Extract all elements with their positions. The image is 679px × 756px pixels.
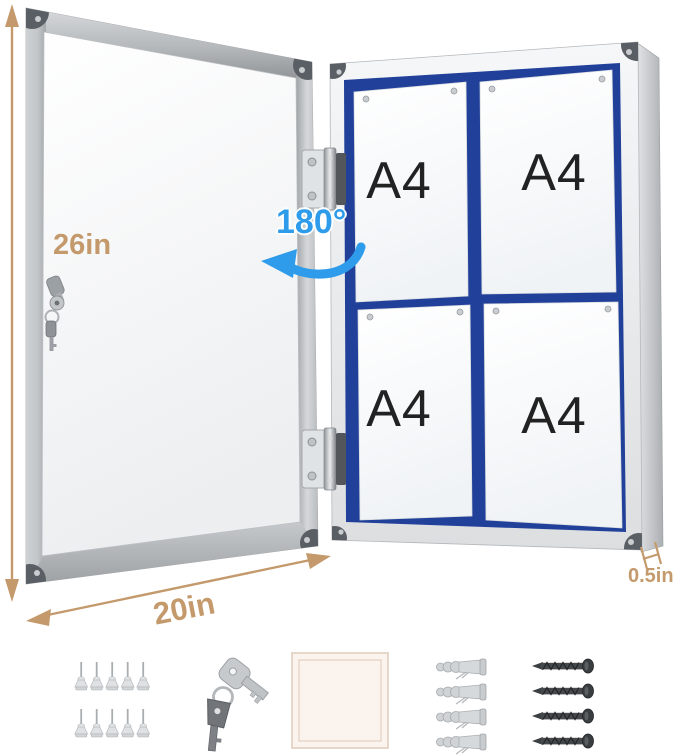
push-pin [90,709,103,737]
dark-key [202,699,230,752]
wall-anchor [437,684,487,704]
height-dimension-label: 26in [53,231,111,260]
push-pin [137,662,150,690]
door-whiteboard-surface [42,32,300,556]
screw [532,684,594,698]
height-dimension [5,4,19,602]
display-cabinet [320,29,663,563]
silver-key [216,655,272,707]
door-hinge-bottom [302,428,346,490]
width-arrow-left [26,609,51,626]
cabinet-door [14,0,328,596]
product-dimension-image: 26in 20in 0.5in 180° A4 A4 A4 A4 [0,0,679,756]
screw [532,659,594,673]
screw [532,709,594,723]
a4-sheet-label: A4 [521,386,587,446]
screw [532,734,594,748]
door-hinge-top [302,148,346,210]
push-pin [75,709,88,737]
a4-sheet-label: A4 [366,151,432,211]
height-arrow-down [5,579,19,602]
wall-anchor [437,709,487,729]
note-pad [292,653,388,748]
width-arrow-right [306,553,331,569]
wall-anchor [437,659,487,679]
push-pin [121,662,134,690]
push-pin [106,662,119,690]
push-pin [121,709,134,737]
notice-board-illustration [0,0,679,756]
push-pin [137,709,150,737]
push-pins-set [75,662,150,737]
wall-anchor [437,734,487,754]
wall-anchors-set [437,659,487,754]
push-pin [75,662,88,690]
a4-sheet-label: A4 [366,379,432,439]
depth-dimension-label: 0.5in [628,566,674,586]
door-swing-angle-label: 180° [276,205,346,239]
keys-set [202,655,272,752]
screws-set [532,659,594,748]
height-arrow-up [5,4,19,27]
a4-sheet-label: A4 [521,143,587,203]
push-pin [90,662,103,690]
push-pin [106,709,119,737]
